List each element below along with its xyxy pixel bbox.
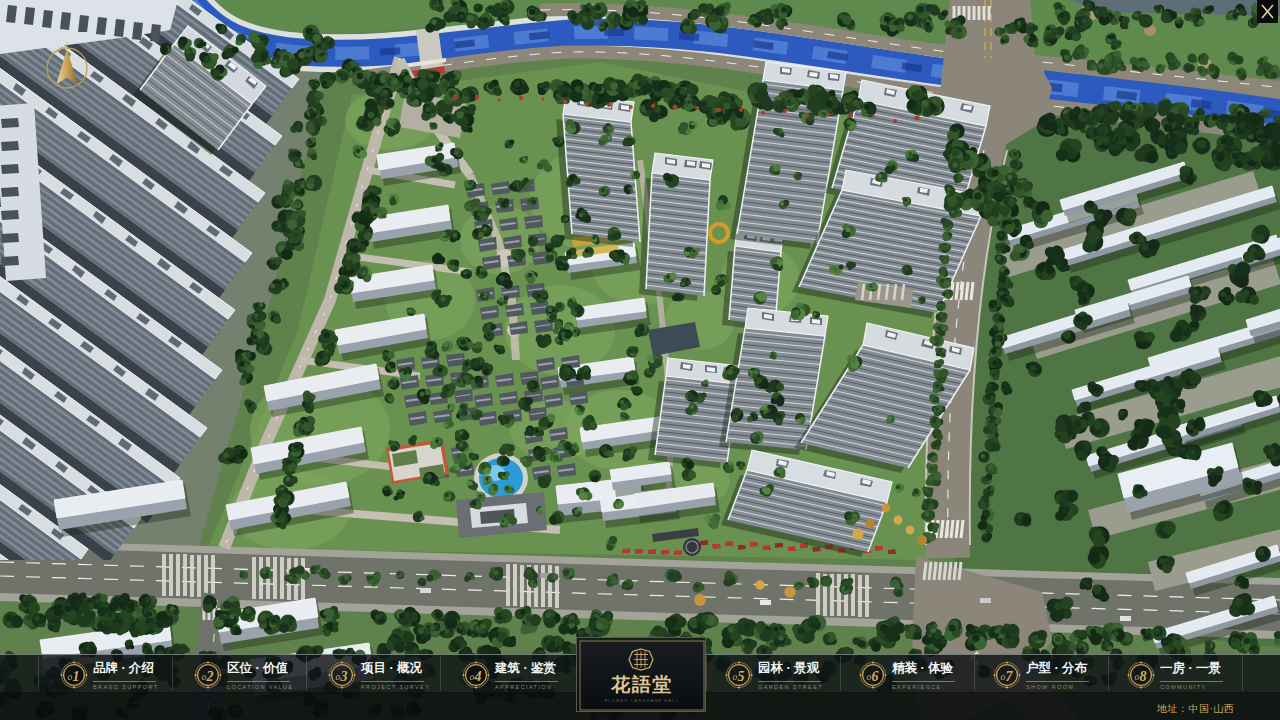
svg-text:7: 7	[1006, 669, 1014, 684]
svg-text:花語堂: 花語堂	[610, 674, 673, 695]
svg-text:6: 6	[872, 669, 879, 684]
svg-text:FLOWER LANGUAGE HALL: FLOWER LANGUAGE HALL	[605, 699, 679, 703]
svg-text:2: 2	[206, 669, 214, 684]
svg-text:3: 3	[340, 669, 348, 684]
svg-text:5: 5	[738, 669, 745, 684]
svg-text:8: 8	[1140, 669, 1147, 684]
svg-text:1: 1	[73, 669, 80, 684]
svg-text:4: 4	[474, 669, 482, 684]
